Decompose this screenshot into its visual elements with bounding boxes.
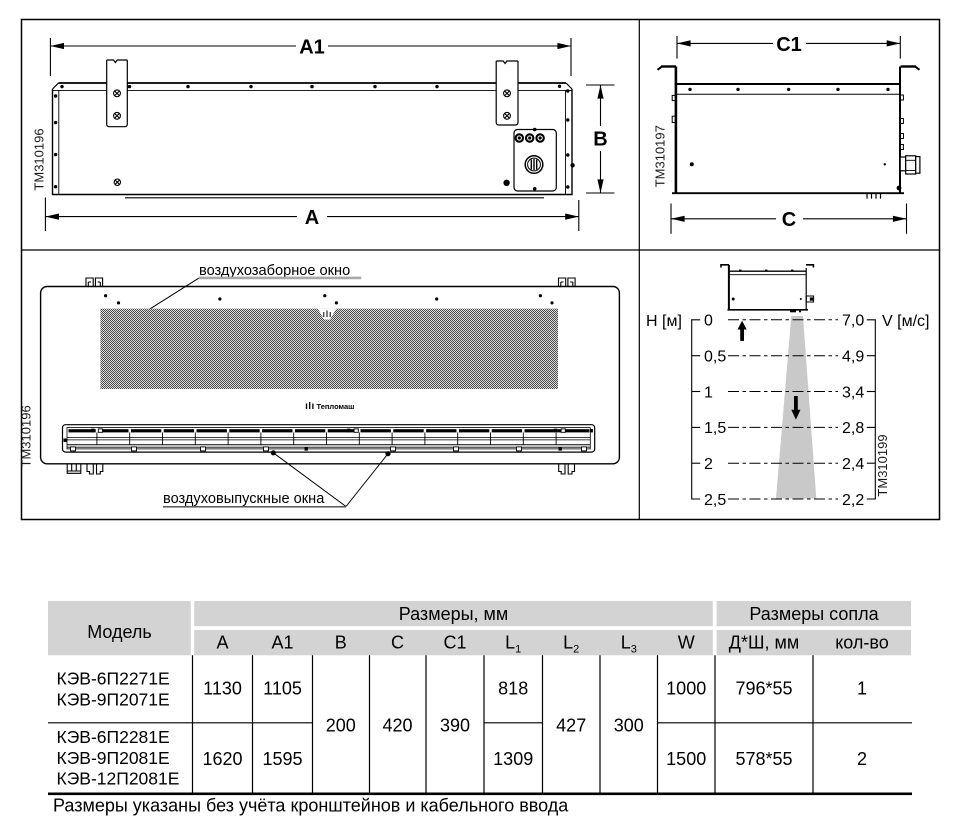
svg-text:A1: A1: [299, 37, 325, 59]
svg-text:2: 2: [857, 749, 867, 769]
svg-text:578*55: 578*55: [735, 749, 792, 769]
svg-text:TM310196: TM310196: [32, 128, 47, 190]
svg-text:TM310196: TM310196: [19, 405, 34, 467]
svg-text:Модель: Модель: [87, 622, 152, 642]
svg-text:1,5: 1,5: [704, 420, 726, 437]
svg-text:0,5: 0,5: [704, 349, 726, 366]
svg-text:0: 0: [704, 313, 713, 330]
svg-text:2,2: 2,2: [842, 492, 864, 509]
svg-text:2,5: 2,5: [704, 492, 726, 509]
svg-text:Н [м]: Н [м]: [646, 313, 682, 330]
svg-text:C: C: [391, 633, 404, 653]
svg-text:воздухозаборное окно: воздухозаборное окно: [199, 263, 350, 279]
svg-text:B: B: [593, 129, 607, 151]
svg-text:КЭВ-9П2071Е: КЭВ-9П2071Е: [57, 689, 170, 709]
svg-text:C1: C1: [776, 34, 802, 56]
svg-text:2,8: 2,8: [842, 420, 864, 437]
svg-text:2: 2: [704, 456, 713, 473]
svg-text:1595: 1595: [262, 749, 302, 769]
svg-text:1620: 1620: [202, 749, 242, 769]
svg-text:1: 1: [857, 679, 867, 699]
svg-text:A: A: [305, 207, 319, 229]
svg-text:A: A: [216, 633, 228, 653]
svg-text:200: 200: [326, 716, 356, 736]
svg-text:C1: C1: [443, 633, 466, 653]
svg-text:КЭВ-12П2081Е: КЭВ-12П2081Е: [57, 769, 180, 789]
svg-text:КЭВ-6П2281Е: КЭВ-6П2281Е: [57, 727, 170, 747]
svg-text:КЭВ-9П2081Е: КЭВ-9П2081Е: [57, 748, 170, 768]
svg-text:420: 420: [382, 716, 412, 736]
svg-text:A1: A1: [271, 633, 293, 653]
svg-text:1000: 1000: [666, 679, 706, 699]
svg-text:TM310197: TM310197: [652, 125, 667, 187]
svg-text:7,0: 7,0: [842, 313, 864, 330]
svg-text:1105: 1105: [263, 679, 302, 699]
svg-text:1: 1: [704, 384, 713, 401]
svg-text:кол-во: кол-во: [835, 633, 889, 653]
svg-text:W: W: [678, 633, 695, 653]
svg-text:Тепломаш: Тепломаш: [317, 402, 355, 411]
svg-text:Размеры сопла: Размеры сопла: [749, 604, 879, 624]
svg-text:796*55: 796*55: [735, 679, 792, 699]
svg-text:300: 300: [614, 716, 644, 736]
svg-text:Размеры, мм: Размеры, мм: [399, 604, 509, 624]
svg-text:B: B: [335, 633, 347, 653]
svg-text:427: 427: [556, 716, 586, 736]
svg-text:2,4: 2,4: [842, 456, 864, 473]
svg-text:818: 818: [498, 679, 528, 699]
svg-text:1309: 1309: [493, 749, 533, 769]
svg-text:Д*Ш, мм: Д*Ш, мм: [729, 633, 799, 653]
svg-text:КЭВ-6П2271Е: КЭВ-6П2271Е: [57, 669, 170, 689]
svg-text:Размеры указаны без учёта крон: Размеры указаны без учёта кронштейнов и …: [53, 796, 569, 816]
svg-text:1130: 1130: [203, 679, 242, 699]
svg-text:3,4: 3,4: [842, 384, 864, 401]
svg-text:1500: 1500: [666, 749, 706, 769]
svg-text:воздуховыпускные окна: воздуховыпускные окна: [163, 491, 325, 507]
svg-text:390: 390: [440, 716, 470, 736]
svg-text:V [м/с]: V [м/с]: [882, 313, 929, 330]
svg-text:C: C: [782, 209, 796, 231]
svg-text:TM310199: TM310199: [875, 434, 890, 496]
svg-text:4,9: 4,9: [842, 349, 864, 366]
